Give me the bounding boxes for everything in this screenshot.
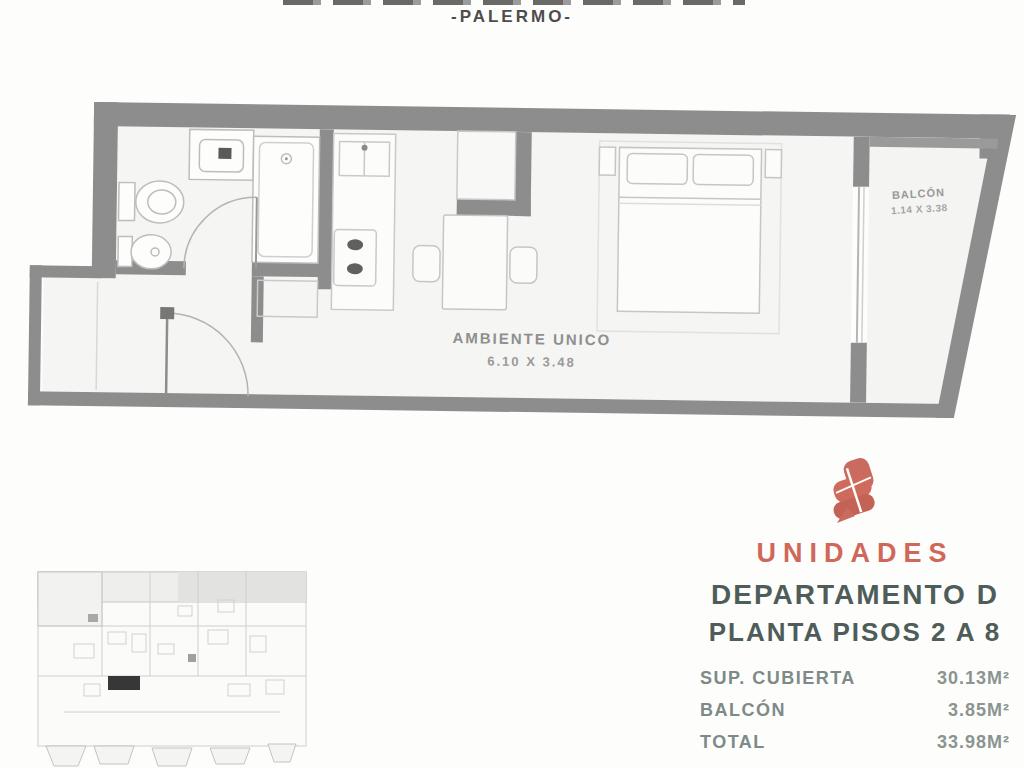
nightstand-left-icon bbox=[599, 147, 615, 175]
balcony-slider-door bbox=[857, 187, 864, 343]
wall-shaft-bottom bbox=[457, 199, 531, 216]
nightstand-right-icon bbox=[765, 149, 781, 177]
area-row-total: TOTAL 33.98M² bbox=[700, 732, 1010, 753]
logo-wrap bbox=[690, 452, 1020, 536]
area-value: 30.13M² bbox=[937, 668, 1010, 689]
unidades-logo-icon bbox=[809, 453, 901, 535]
area-label: SUP. CUBIERTA bbox=[700, 668, 856, 689]
pillow-right-icon bbox=[693, 154, 753, 185]
room-dims: 6.10 X 3.48 bbox=[487, 354, 576, 370]
wall-balcony-divider-top bbox=[853, 137, 870, 187]
wall-entry-left bbox=[28, 265, 42, 405]
key-floorplan bbox=[28, 556, 320, 768]
unit-title: DEPARTAMENTO D bbox=[690, 579, 1020, 611]
area-label: BALCÓN bbox=[700, 700, 786, 721]
unit-info-block: UNIDADES DEPARTAMENTO D PLANTA PISOS 2 A… bbox=[690, 452, 1020, 764]
stove-icon bbox=[334, 229, 377, 286]
brand-name: UNIDADES bbox=[690, 538, 1020, 569]
unit-subtitle: PLANTA PISOS 2 A 8 bbox=[690, 617, 1020, 648]
table-icon bbox=[442, 215, 507, 310]
wall-balcony-divider-bottom bbox=[850, 343, 867, 403]
wall-left bbox=[92, 102, 118, 278]
area-row-sup-cubierta: SUP. CUBIERTA 30.13M² bbox=[700, 668, 1010, 689]
room-label: AMBIENTE UNICO bbox=[452, 329, 611, 348]
kitchen-sink-icon bbox=[339, 141, 389, 176]
pillow-left-icon bbox=[627, 153, 687, 184]
wall-shower-bottom bbox=[252, 262, 332, 277]
wall-balcony-top bbox=[870, 137, 998, 149]
area-table: SUP. CUBIERTA 30.13M² BALCÓN 3.85M² TOTA… bbox=[690, 668, 1020, 753]
shower-icon bbox=[252, 136, 320, 263]
area-value: 33.98M² bbox=[937, 732, 1010, 753]
wall-entry-top bbox=[30, 265, 102, 278]
flyer-page: { "page": { "location": "-PALERMO-" }, "… bbox=[0, 0, 1024, 768]
area-label: TOTAL bbox=[700, 732, 766, 753]
bidet-icon bbox=[118, 234, 171, 269]
area-row-balcon: BALCÓN 3.85M² bbox=[700, 700, 1010, 721]
chair-right-icon bbox=[510, 247, 538, 283]
toilet-icon bbox=[118, 180, 184, 223]
bed-area bbox=[597, 141, 782, 334]
chair-left-icon bbox=[413, 246, 441, 282]
vanity-sink-icon bbox=[189, 129, 254, 180]
area-value: 3.85M² bbox=[948, 700, 1010, 721]
key-plan-balconies bbox=[46, 744, 296, 766]
shaft-box bbox=[457, 131, 516, 200]
highlighted-unit bbox=[108, 676, 140, 690]
